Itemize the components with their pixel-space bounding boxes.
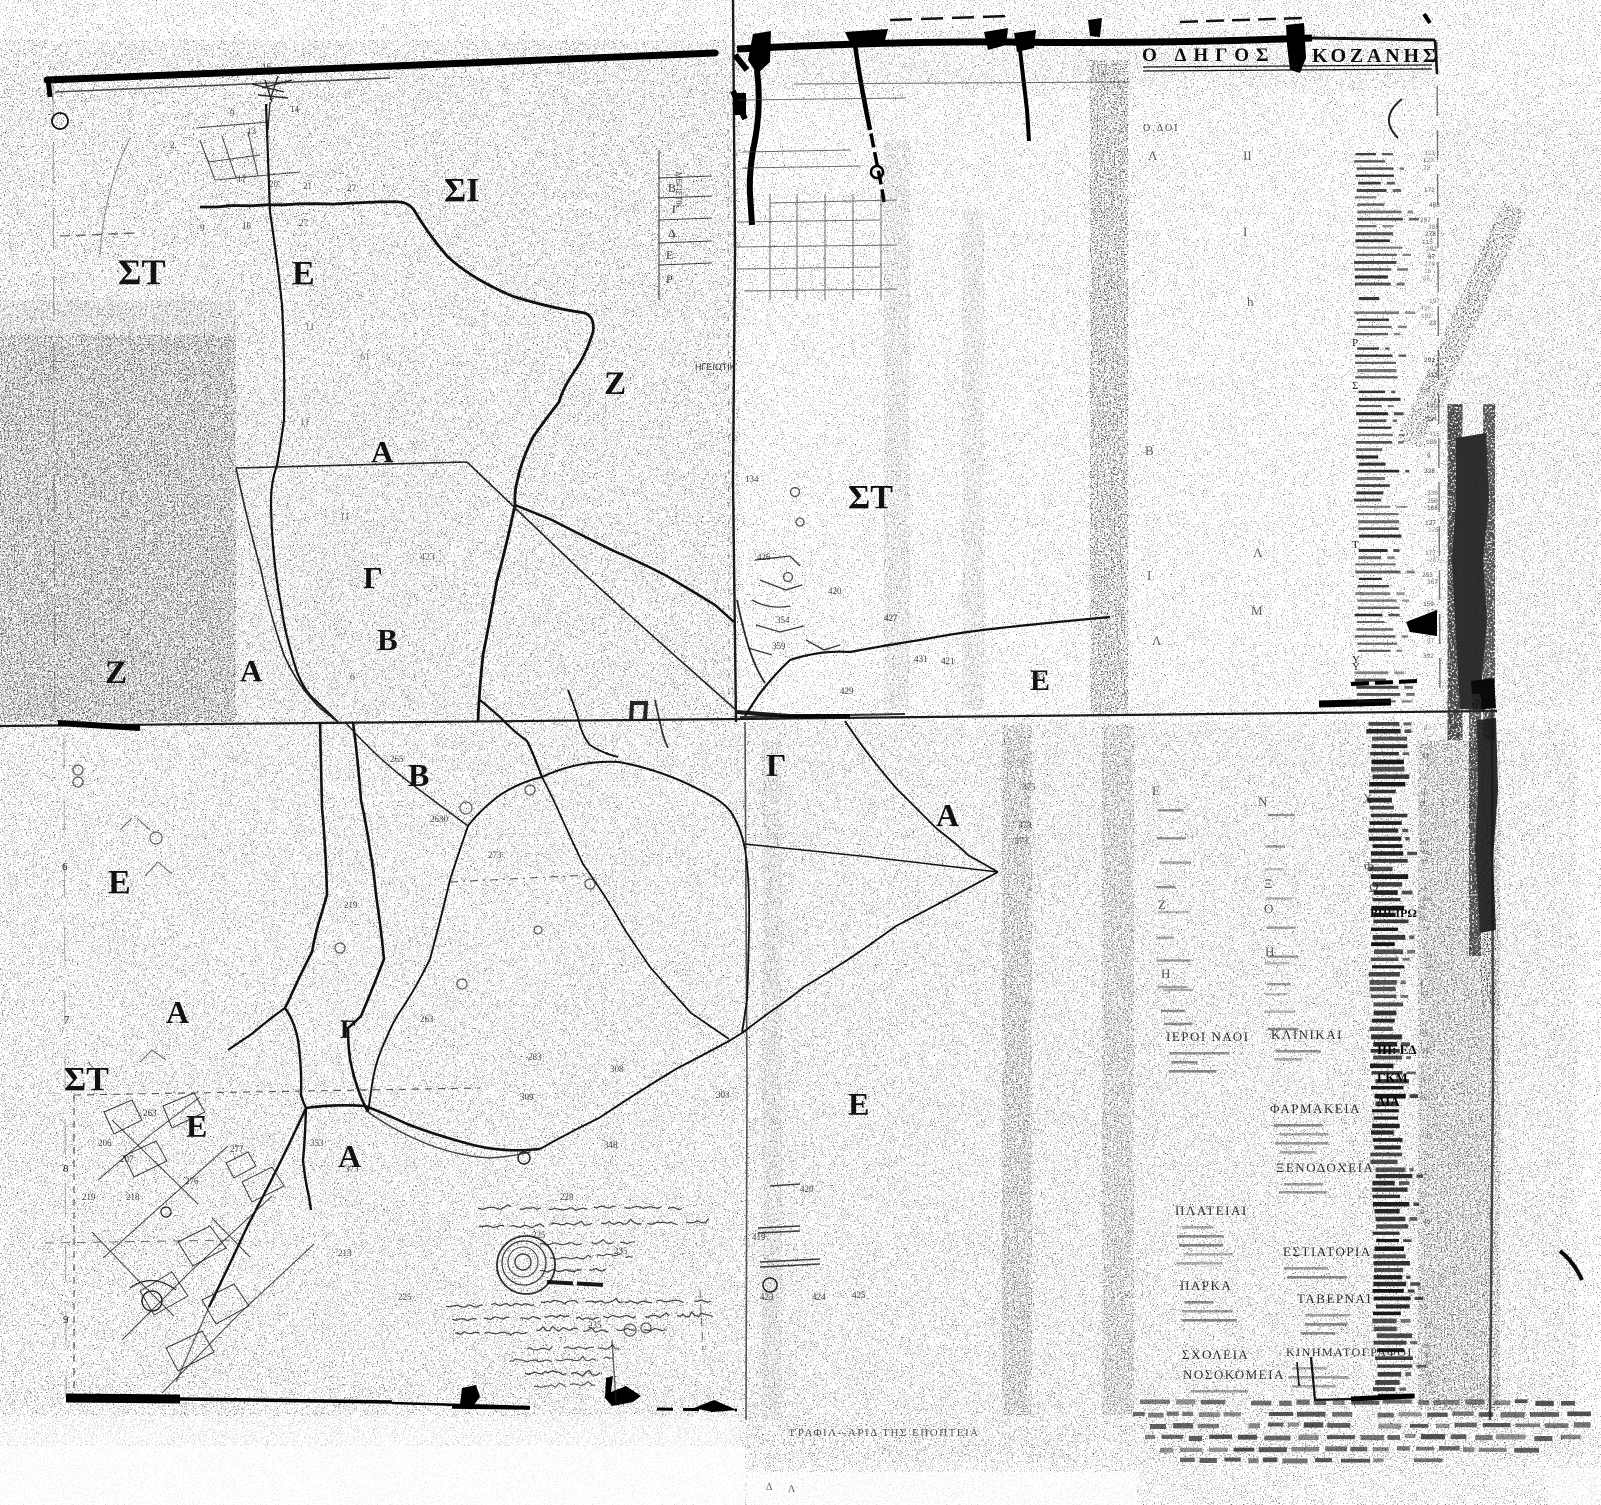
svg-text:Α: Α [936, 797, 959, 833]
svg-text:375: 375 [1022, 782, 1036, 792]
svg-text:276: 276 [1424, 261, 1435, 268]
svg-text:427: 427 [884, 613, 898, 623]
svg-text:313: 313 [1427, 372, 1438, 379]
svg-text:Η: Η [1161, 966, 1170, 981]
svg-text:Γ: Γ [766, 747, 786, 783]
svg-text:Δ: Δ [668, 226, 676, 240]
svg-text:Ζ: Ζ [105, 655, 127, 691]
svg-text:ΣΤ: ΣΤ [64, 1061, 109, 1098]
svg-text:9: 9 [1427, 453, 1431, 460]
svg-text:Γ: Γ [363, 560, 383, 595]
svg-text:ΦΑΡΜΑΚΕΙΑ: ΦΑΡΜΑΚΕΙΑ [1270, 1101, 1361, 1116]
svg-text:65: 65 [1422, 791, 1430, 798]
svg-text:423: 423 [420, 552, 435, 563]
svg-text:219: 219 [344, 900, 358, 910]
svg-text:5: 5 [1424, 1171, 1428, 1178]
svg-text:197: 197 [1429, 298, 1440, 305]
svg-text:15: 15 [1419, 1077, 1427, 1084]
svg-text:Ι: Ι [1147, 568, 1151, 583]
svg-text:6: 6 [350, 672, 355, 683]
svg-text:180: 180 [1426, 439, 1437, 446]
svg-text:49: 49 [1423, 1219, 1431, 1226]
svg-text:92: 92 [1424, 725, 1432, 732]
svg-text:127: 127 [1425, 520, 1436, 527]
svg-text:430: 430 [1420, 305, 1431, 312]
svg-text:ΕΣΤΙΑΤΟΡΙΑ: ΕΣΤΙΑΤΟΡΙΑ [1283, 1244, 1372, 1259]
svg-text:175: 175 [1428, 527, 1439, 534]
svg-text:424: 424 [812, 1292, 826, 1302]
svg-text:ΣΤ: ΣΤ [118, 252, 166, 292]
svg-text:61: 61 [1419, 915, 1427, 922]
svg-text:373: 373 [345, 1164, 359, 1174]
svg-text:56: 56 [1420, 1095, 1428, 1102]
svg-text:ΠΑΡΚΑ: ΠΑΡΚΑ [1180, 1278, 1232, 1293]
svg-text:ΓΚΜ: ΓΚΜ [1377, 1070, 1408, 1085]
svg-text:32: 32 [1420, 773, 1428, 780]
svg-text:Σ: Σ [1352, 380, 1358, 392]
svg-text:287: 287 [1429, 557, 1440, 564]
svg-text:420: 420 [800, 1184, 814, 1194]
svg-text:83: 83 [1421, 858, 1429, 865]
svg-text:Ξ: Ξ [1264, 876, 1272, 891]
svg-text:16: 16 [1424, 268, 1432, 275]
svg-text:23: 23 [1429, 320, 1437, 327]
svg-text:16: 16 [262, 62, 272, 72]
svg-text:8: 8 [1420, 981, 1424, 988]
svg-text:324: 324 [1426, 416, 1437, 423]
svg-text:297: 297 [1420, 217, 1431, 224]
svg-text:354: 354 [776, 615, 790, 625]
svg-text:367: 367 [1427, 579, 1438, 586]
svg-text:308: 308 [610, 1064, 624, 1074]
svg-text:168: 168 [1427, 505, 1438, 512]
svg-text:39: 39 [1424, 1361, 1432, 1368]
svg-text:9: 9 [63, 1314, 69, 1326]
svg-text:219: 219 [82, 1192, 96, 1202]
svg-text:263: 263 [143, 1108, 157, 1118]
svg-text:Ε: Ε [292, 255, 315, 292]
svg-text:336: 336 [1427, 490, 1438, 497]
svg-text:Δ: Δ [766, 1482, 773, 1493]
svg-text:66: 66 [1422, 849, 1430, 856]
svg-text:69: 69 [1422, 753, 1430, 760]
svg-text:2.: 2. [170, 140, 177, 150]
svg-text:323: 323 [1424, 150, 1435, 157]
svg-text:162: 162 [1420, 387, 1431, 394]
svg-text:ι: ι [1560, 1432, 1563, 1443]
svg-text:Λ: Λ [1148, 148, 1158, 163]
svg-text:Υ: Υ [1352, 661, 1360, 673]
svg-text:9: 9 [230, 108, 235, 118]
svg-text:Ε: Ε [108, 864, 131, 901]
svg-text:Ζ: Ζ [604, 366, 626, 402]
svg-text:27: 27 [299, 218, 309, 228]
svg-text:Β: Β [377, 622, 398, 657]
svg-text:32: 32 [1421, 887, 1429, 894]
svg-text:45: 45 [1419, 905, 1427, 912]
svg-text:Ο: Ο [1264, 901, 1273, 916]
svg-text:ΜΕΓΙΣΤΙΚ: ΜΕΓΙΣΤΙΚ [674, 172, 683, 209]
svg-text:16: 16 [242, 221, 252, 231]
svg-text:207: 207 [120, 1154, 134, 1164]
svg-text:ΞΕΝΟΔΟΧΕΙΑ: ΞΕΝΟΔΟΧΕΙΑ [1276, 1160, 1374, 1175]
svg-text:Ν: Ν [1258, 794, 1268, 809]
svg-text:206: 206 [98, 1138, 112, 1148]
svg-text:Ε: Ε [666, 248, 673, 262]
svg-text:17: 17 [1424, 1381, 1432, 1388]
svg-text:32: 32 [1418, 801, 1426, 808]
svg-text:ΝΟΣΟΚΟΜΕΙΑ: ΝΟΣΟΚΟΜΕΙΑ [1183, 1367, 1285, 1382]
svg-text:235: 235 [588, 1320, 602, 1330]
svg-text:Ε: Ε [1152, 783, 1160, 798]
svg-text:263: 263 [420, 1014, 434, 1024]
svg-text:Α: Α [166, 994, 189, 1030]
svg-text:ΣΤ: ΣΤ [848, 479, 893, 516]
svg-text:392: 392 [1423, 653, 1434, 660]
svg-text:96: 96 [1423, 896, 1431, 903]
svg-text:431: 431 [914, 654, 928, 664]
svg-text:276: 276 [185, 1176, 199, 1186]
svg-text:172: 172 [1424, 187, 1435, 194]
svg-text:ΙΙ: ΙΙ [1243, 148, 1252, 163]
svg-text:58: 58 [1422, 1343, 1430, 1350]
svg-text:27: 27 [347, 183, 357, 193]
svg-text:265: 265 [390, 754, 404, 764]
svg-text:97: 97 [1427, 638, 1435, 645]
svg-text:359: 359 [772, 641, 786, 651]
svg-text:13: 13 [247, 126, 257, 136]
svg-text:ΚΟΖΑΝΗΣ: ΚΟΖΑΝΗΣ [1312, 45, 1440, 67]
svg-text:95: 95 [1422, 1048, 1430, 1055]
svg-text:ΚΛΙΝΙΚΑΙ: ΚΛΙΝΙΚΑΙ [1271, 1027, 1343, 1042]
svg-text:Β: Β [408, 757, 429, 793]
svg-text:Α: Α [371, 434, 394, 469]
svg-text:373: 373 [1018, 820, 1032, 830]
svg-text:235: 235 [614, 1246, 628, 1256]
svg-text:ΤΑΒΕΡΝΑΙ: ΤΑΒΕΡΝΑΙ [1297, 1291, 1372, 1306]
svg-text:182: 182 [1421, 313, 1432, 320]
svg-text:10: 10 [1419, 839, 1427, 846]
svg-text:ΔΙΑ: ΔΙΑ [1377, 1094, 1400, 1109]
svg-text:Ζ: Ζ [1158, 897, 1166, 912]
svg-text:29: 29 [1425, 744, 1433, 751]
svg-text:7: 7 [1422, 943, 1426, 950]
svg-text:291: 291 [1424, 357, 1435, 364]
svg-text:17: 17 [237, 174, 247, 184]
svg-text:Λ: Λ [1152, 633, 1162, 648]
svg-text:425: 425 [852, 1290, 866, 1300]
svg-text:ΣΙ: ΣΙ [444, 172, 479, 209]
svg-text:57: 57 [1425, 1133, 1433, 1140]
svg-text:ΙΙΙ: ΕΔ: ΙΙΙ: ΕΔ [1377, 1042, 1417, 1057]
svg-text:420: 420 [828, 586, 842, 596]
svg-text:433: 433 [1031, 672, 1045, 682]
svg-text:Ο ΔΗΓΟΣ: Ο ΔΗΓΟΣ [1142, 45, 1275, 66]
svg-text:Ο.ΔΟΙ: Ο.ΔΟΙ [1143, 123, 1180, 134]
svg-text:61: 61 [360, 352, 370, 363]
svg-text:34: 34 [1426, 963, 1434, 970]
svg-text:47: 47 [1420, 811, 1428, 818]
svg-text:7: 7 [64, 1014, 70, 1026]
svg-text:Λ: Λ [1253, 545, 1263, 560]
svg-text:Ε: Ε [186, 1108, 207, 1144]
svg-text:Τ: Τ [1352, 539, 1359, 551]
svg-text:218: 218 [126, 1192, 140, 1202]
svg-text:9: 9 [200, 223, 205, 233]
svg-text:21: 21 [303, 181, 312, 191]
svg-text:59: 59 [1420, 1305, 1428, 1312]
svg-text:388: 388 [1428, 224, 1439, 231]
svg-text:328: 328 [1424, 468, 1435, 475]
svg-text:423: 423 [760, 1292, 774, 1302]
svg-text:Α: Α [240, 653, 263, 688]
svg-text:49: 49 [1421, 991, 1429, 998]
svg-text:Γ: Γ [340, 1015, 357, 1044]
svg-text:Ι: Ι [1243, 224, 1247, 239]
svg-text:Β: Β [1145, 443, 1154, 458]
svg-text:348: 348 [604, 1140, 618, 1150]
svg-text:419: 419 [752, 1232, 766, 1242]
svg-text:8: 8 [63, 1163, 69, 1175]
svg-text:h: h [1247, 294, 1254, 309]
svg-text:429: 429 [840, 686, 854, 696]
svg-text:ΠΛΑΤΕΙΑΙ: ΠΛΑΤΕΙΑΙ [1175, 1203, 1248, 1218]
svg-text:213: 213 [338, 1248, 352, 1258]
svg-text:6: 6 [62, 861, 68, 873]
svg-text:14: 14 [290, 104, 300, 114]
svg-text:Ρ: Ρ [1352, 337, 1358, 349]
svg-text:225: 225 [398, 1292, 412, 1302]
svg-text:19: 19 [1422, 925, 1430, 932]
svg-text:ΙΕΡΟΙ ΝΑΟΙ: ΙΕΡΟΙ ΝΑΟΙ [1166, 1029, 1249, 1044]
svg-text:73: 73 [1423, 165, 1431, 172]
svg-text:6: 6 [1421, 1209, 1425, 1216]
svg-text:11: 11 [305, 322, 315, 333]
svg-text:11: 11 [340, 512, 350, 523]
svg-text:27: 27 [1424, 1323, 1432, 1330]
svg-text:Ε: Ε [848, 1086, 869, 1122]
svg-text:303: 303 [716, 1090, 730, 1100]
svg-text:83: 83 [1426, 1153, 1434, 1160]
svg-text:353: 353 [310, 1138, 324, 1148]
svg-text:20: 20 [269, 179, 279, 189]
svg-text:202: 202 [1426, 246, 1437, 253]
svg-text:Μ: Μ [1251, 603, 1263, 618]
svg-text:177: 177 [1425, 550, 1436, 557]
svg-text:195: 195 [1426, 402, 1437, 409]
svg-text:2630: 2630 [430, 814, 449, 824]
svg-text:Ρ: Ρ [666, 272, 673, 286]
svg-text:250: 250 [1427, 498, 1438, 505]
svg-text:ΗΓΕΙΩΤΙΚ: ΗΓΕΙΩΤΙΚ [695, 362, 736, 372]
svg-text:225: 225 [532, 1230, 546, 1240]
svg-text:90: 90 [1421, 1029, 1429, 1036]
svg-text:96: 96 [1423, 276, 1431, 283]
svg-text:283: 283 [528, 1052, 542, 1062]
svg-text:Λ: Λ [788, 1484, 796, 1495]
svg-text:68: 68 [1418, 1285, 1426, 1292]
svg-text:115: 115 [1422, 239, 1433, 246]
svg-text:10: 10 [1424, 1191, 1432, 1198]
svg-text:159: 159 [1423, 601, 1434, 608]
svg-text:309: 309 [520, 1092, 534, 1102]
svg-text:/373: /373 [1012, 836, 1029, 846]
svg-text:466: 466 [1429, 202, 1440, 209]
svg-text:426: 426 [757, 552, 771, 562]
svg-text:91: 91 [1425, 1371, 1433, 1378]
svg-text:278: 278 [1425, 231, 1436, 238]
svg-text:ΣΧΟΛΕΙΑ: ΣΧΟΛΕΙΑ [1182, 1347, 1249, 1362]
svg-text:273: 273 [488, 850, 502, 860]
svg-text:11: 11 [300, 417, 310, 428]
svg-text:ΓΡΑΦΙΛ--ΑΡΙΔ ΤΗΣ ΕΠΟΠΤΕΙΑ: ΓΡΑΦΙΛ--ΑΡΙΔ ΤΗΣ ΕΠΟΠΤΕΙΑ [790, 1427, 980, 1439]
svg-text:415: 415 [1429, 431, 1440, 438]
svg-text:134: 134 [745, 474, 759, 484]
svg-text:123: 123 [1423, 157, 1434, 164]
svg-text:277: 277 [230, 1144, 244, 1154]
svg-text:41: 41 [1425, 953, 1433, 960]
svg-text:42: 42 [1424, 1352, 1432, 1359]
svg-text:228: 228 [560, 1192, 574, 1202]
svg-text:253: 253 [1422, 572, 1433, 579]
svg-text:87: 87 [1428, 254, 1436, 261]
svg-text:421: 421 [941, 656, 955, 666]
